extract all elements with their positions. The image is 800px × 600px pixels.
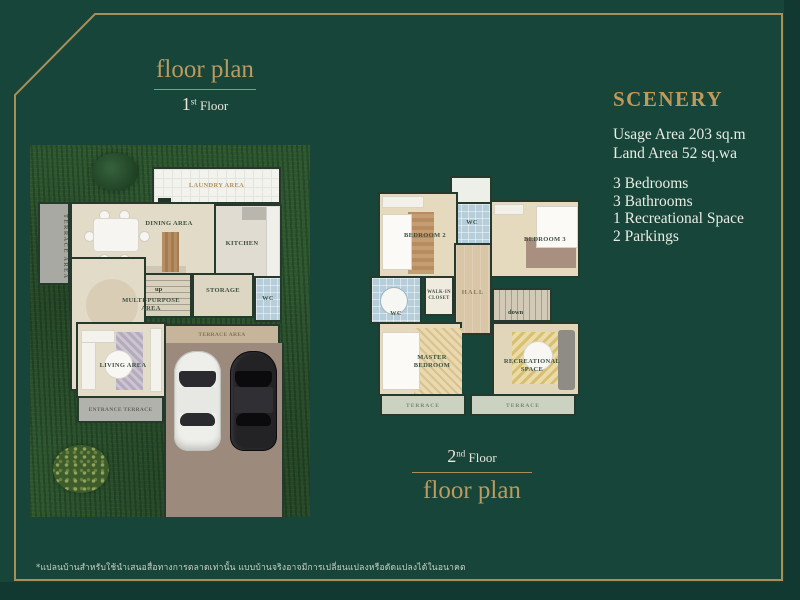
room-label-entrance: ENTRANCE TERRACE	[79, 407, 162, 414]
room-label-laundry: LAUNDRY AREA	[154, 182, 279, 190]
shrub	[53, 445, 109, 493]
room-bedroom-3: BEDROOM 3	[490, 200, 580, 278]
dining-chair	[85, 232, 94, 241]
parking-area	[164, 343, 284, 517]
wardrobe	[494, 204, 524, 215]
feature-recreational: 1 Recreational Space	[613, 210, 788, 228]
room-terrace-left: TERRACE	[380, 394, 466, 416]
floor-plan-title-1: floor plan	[140, 56, 270, 84]
room-label-master: MASTER BEDROOM	[404, 354, 460, 371]
feature-bedrooms: 3 Bedrooms	[613, 175, 788, 193]
room-wc-left: WC	[370, 276, 422, 324]
room-label-multipurpose: MULTI-PURPOSE AREA	[114, 297, 188, 314]
room-label-hall: HALL	[456, 289, 490, 297]
kitchen-counter	[242, 207, 266, 220]
gold-divider-2	[412, 472, 532, 473]
disclaimer-text: *แปลนบ้านสำหรับใช้นำเสนอสื่อทางการตลาดเท…	[36, 560, 756, 574]
floor-plan-title-2: floor plan	[398, 477, 546, 505]
area-info: Usage Area 203 sq.m Land Area 52 sq.wa	[613, 125, 788, 163]
room-storage: STORAGE	[192, 273, 254, 318]
project-title: SCENERY	[613, 87, 788, 112]
white-car	[174, 351, 221, 451]
black-car	[230, 351, 277, 451]
room-label-living: LIVING AREA	[90, 362, 156, 370]
room-label-recreational: RECREATIONAL SPACE	[500, 358, 564, 375]
stairs-down-label: down	[508, 309, 523, 316]
staircase-down: down	[492, 288, 552, 322]
tree	[92, 153, 138, 191]
room-label-terrace-right: TERRACE	[472, 403, 574, 410]
outer-edge-bottom	[0, 582, 800, 600]
room-walk-in-closet: WALK-IN CLOSET	[424, 276, 454, 316]
tv-console	[150, 328, 162, 392]
gold-divider-1	[154, 89, 256, 90]
usage-area: Usage Area 203 sq.m	[613, 125, 788, 144]
dining-table	[94, 219, 138, 251]
room-label-wc1: WC	[256, 295, 280, 303]
room-label-side-terrace: TERRACE AREA	[40, 210, 68, 283]
second-floor-heading: 2nd Floor floor plan	[398, 446, 546, 505]
feature-bathrooms: 3 Bathrooms	[613, 193, 788, 211]
sofa	[81, 330, 115, 343]
room-living-area: LIVING AREA	[76, 322, 167, 398]
car-windshield	[235, 371, 272, 388]
room-master-bedroom: MASTER BEDROOM	[378, 322, 462, 396]
room-label-kitchen: KITCHEN	[216, 240, 268, 248]
wood-floor-strip	[162, 232, 179, 272]
feature-parkings: 2 Parkings	[613, 228, 788, 246]
room-entrance-terrace: ENTRANCE TERRACE	[77, 396, 164, 423]
room-recreational-space: RECREATIONAL SPACE	[492, 322, 580, 396]
feature-list: 3 Bedrooms 3 Bathrooms 1 Recreational Sp…	[613, 175, 788, 245]
car-rear-window	[236, 413, 271, 426]
room-terrace-right: TERRACE	[470, 394, 576, 416]
first-floor-plan: LAUNDRY AREA TERRACE AREA DINING AREA KI…	[30, 145, 310, 517]
room-label-wc-left: WC	[372, 310, 420, 318]
second-floor-label: 2nd Floor	[398, 446, 546, 467]
room-label-terrace-band: TERRACE AREA	[166, 332, 278, 339]
room-wc-first-floor: WC	[254, 276, 282, 322]
wardrobe	[382, 196, 424, 208]
land-area: Land Area 52 sq.wa	[613, 144, 788, 163]
room-label-bedroom2: BEDROOM 2	[394, 232, 456, 240]
room-label-walkin: WALK-IN CLOSET	[426, 290, 452, 302]
room-label-terrace-left: TERRACE	[382, 403, 464, 410]
floor-plan-brochure: floor plan 1st Floor LAUNDRY AREA TERRAC…	[0, 0, 800, 600]
stairs-up-label: up	[155, 286, 162, 293]
bedroom2-bed	[382, 214, 412, 270]
second-floor-plan: WC BEDROOM 2 BEDROOM 3 HALL WC WALK-IN C…	[370, 176, 602, 428]
car-roof	[178, 387, 217, 413]
room-wc-top: WC	[452, 202, 492, 245]
room-laundry-area: LAUNDRY AREA	[152, 167, 281, 204]
car-roof	[234, 387, 273, 413]
first-floor-heading: floor plan 1st Floor	[140, 56, 270, 115]
dining-chair	[140, 232, 149, 241]
room-terrace-area: TERRACE AREA	[164, 324, 280, 345]
car-windshield	[179, 371, 216, 388]
car-rear-window	[180, 413, 215, 426]
room-side-terrace: TERRACE AREA	[38, 202, 70, 285]
first-floor-label: 1st Floor	[140, 94, 270, 115]
room-bedroom-2: BEDROOM 2	[378, 192, 458, 278]
project-info: SCENERY Usage Area 203 sq.m Land Area 52…	[613, 87, 788, 245]
room-label-storage: STORAGE	[194, 287, 252, 295]
room-label-wc-top: WC	[454, 219, 490, 227]
room-label-bedroom3: BEDROOM 3	[512, 236, 578, 244]
room-label-dining: DINING AREA	[144, 220, 194, 228]
